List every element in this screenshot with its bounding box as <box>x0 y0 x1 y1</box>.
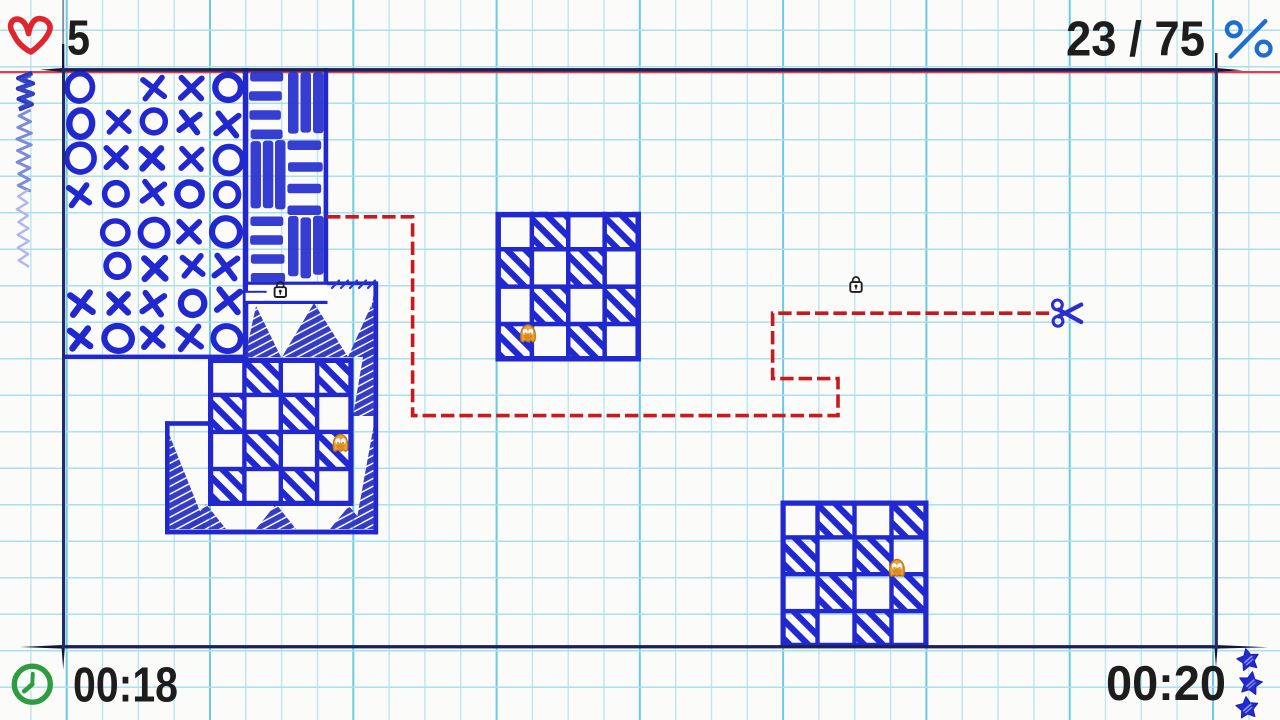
svg-text:00:18: 00:18 <box>73 658 178 712</box>
svg-text:00:20: 00:20 <box>1106 657 1226 711</box>
svg-text:23 / 75: 23 / 75 <box>1066 12 1205 66</box>
svg-text:5: 5 <box>67 12 90 66</box>
